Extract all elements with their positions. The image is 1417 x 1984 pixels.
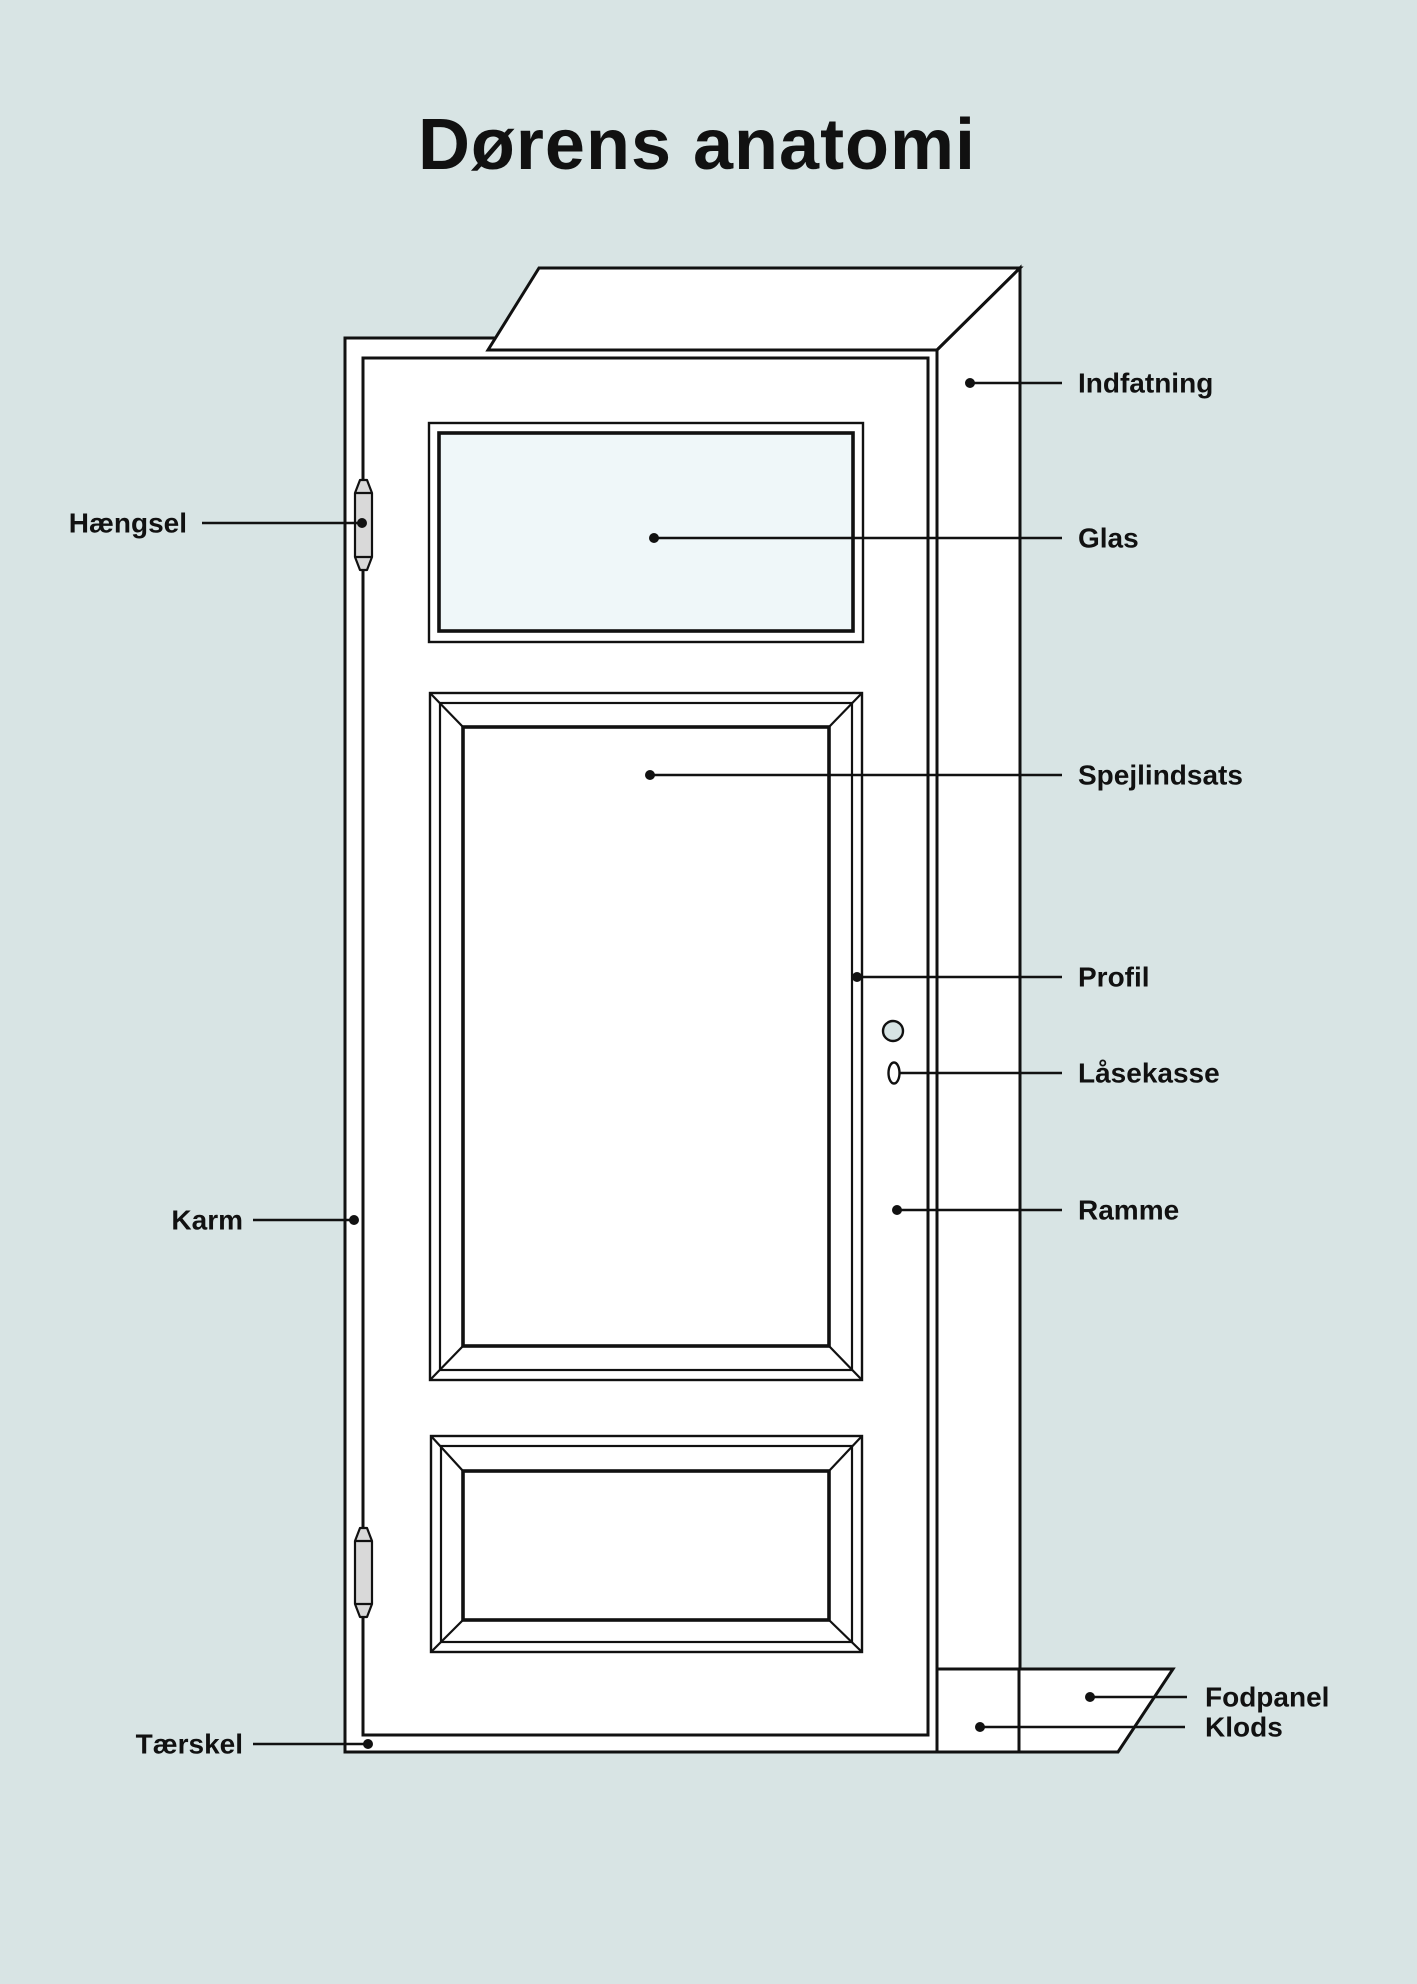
label-fodpanel: Fodpanel [1205, 1682, 1329, 1713]
glass-panel [429, 423, 863, 642]
ramme-dot [892, 1205, 902, 1215]
lower-panel [431, 1436, 862, 1652]
middle-panel-outer [430, 693, 862, 1380]
haengsel-dot [357, 518, 367, 528]
indfatning-dot [965, 378, 975, 388]
label-lasekasse: Låsekasse [1078, 1058, 1220, 1089]
klods-dot [975, 1722, 985, 1732]
bottom-hinge [355, 1528, 372, 1617]
profil-dot [852, 972, 862, 982]
casing-top-board [488, 268, 1020, 350]
label-glas: Glas [1078, 523, 1139, 554]
klods-block [937, 1669, 1019, 1752]
glass-pane [439, 433, 853, 631]
label-ramme: Ramme [1078, 1195, 1179, 1226]
page-title: Dørens anatomi [418, 105, 976, 185]
karm-dot [349, 1215, 359, 1225]
keyhole [889, 1063, 900, 1084]
casing-right-board [937, 268, 1020, 1669]
taerskel-dot [363, 1739, 373, 1749]
label-profil: Profil [1078, 962, 1150, 993]
label-indfatning: Indfatning [1078, 368, 1213, 399]
poster: Dørens anatomi [0, 0, 1417, 1984]
door-knob [883, 1021, 903, 1041]
fodpanel-dot [1085, 1692, 1095, 1702]
spejlindsats-dot [645, 770, 655, 780]
glas-dot [649, 533, 659, 543]
label-klods: Klods [1205, 1712, 1283, 1743]
label-taerskel: Tærskel [136, 1729, 243, 1760]
door-anatomy-diagram: Dørens anatomi [0, 0, 1417, 1984]
label-haengsel: Hængsel [69, 508, 187, 539]
label-spejlindsats: Spejlindsats [1078, 760, 1243, 791]
middle-panel [430, 693, 862, 1380]
label-karm: Karm [171, 1205, 243, 1236]
